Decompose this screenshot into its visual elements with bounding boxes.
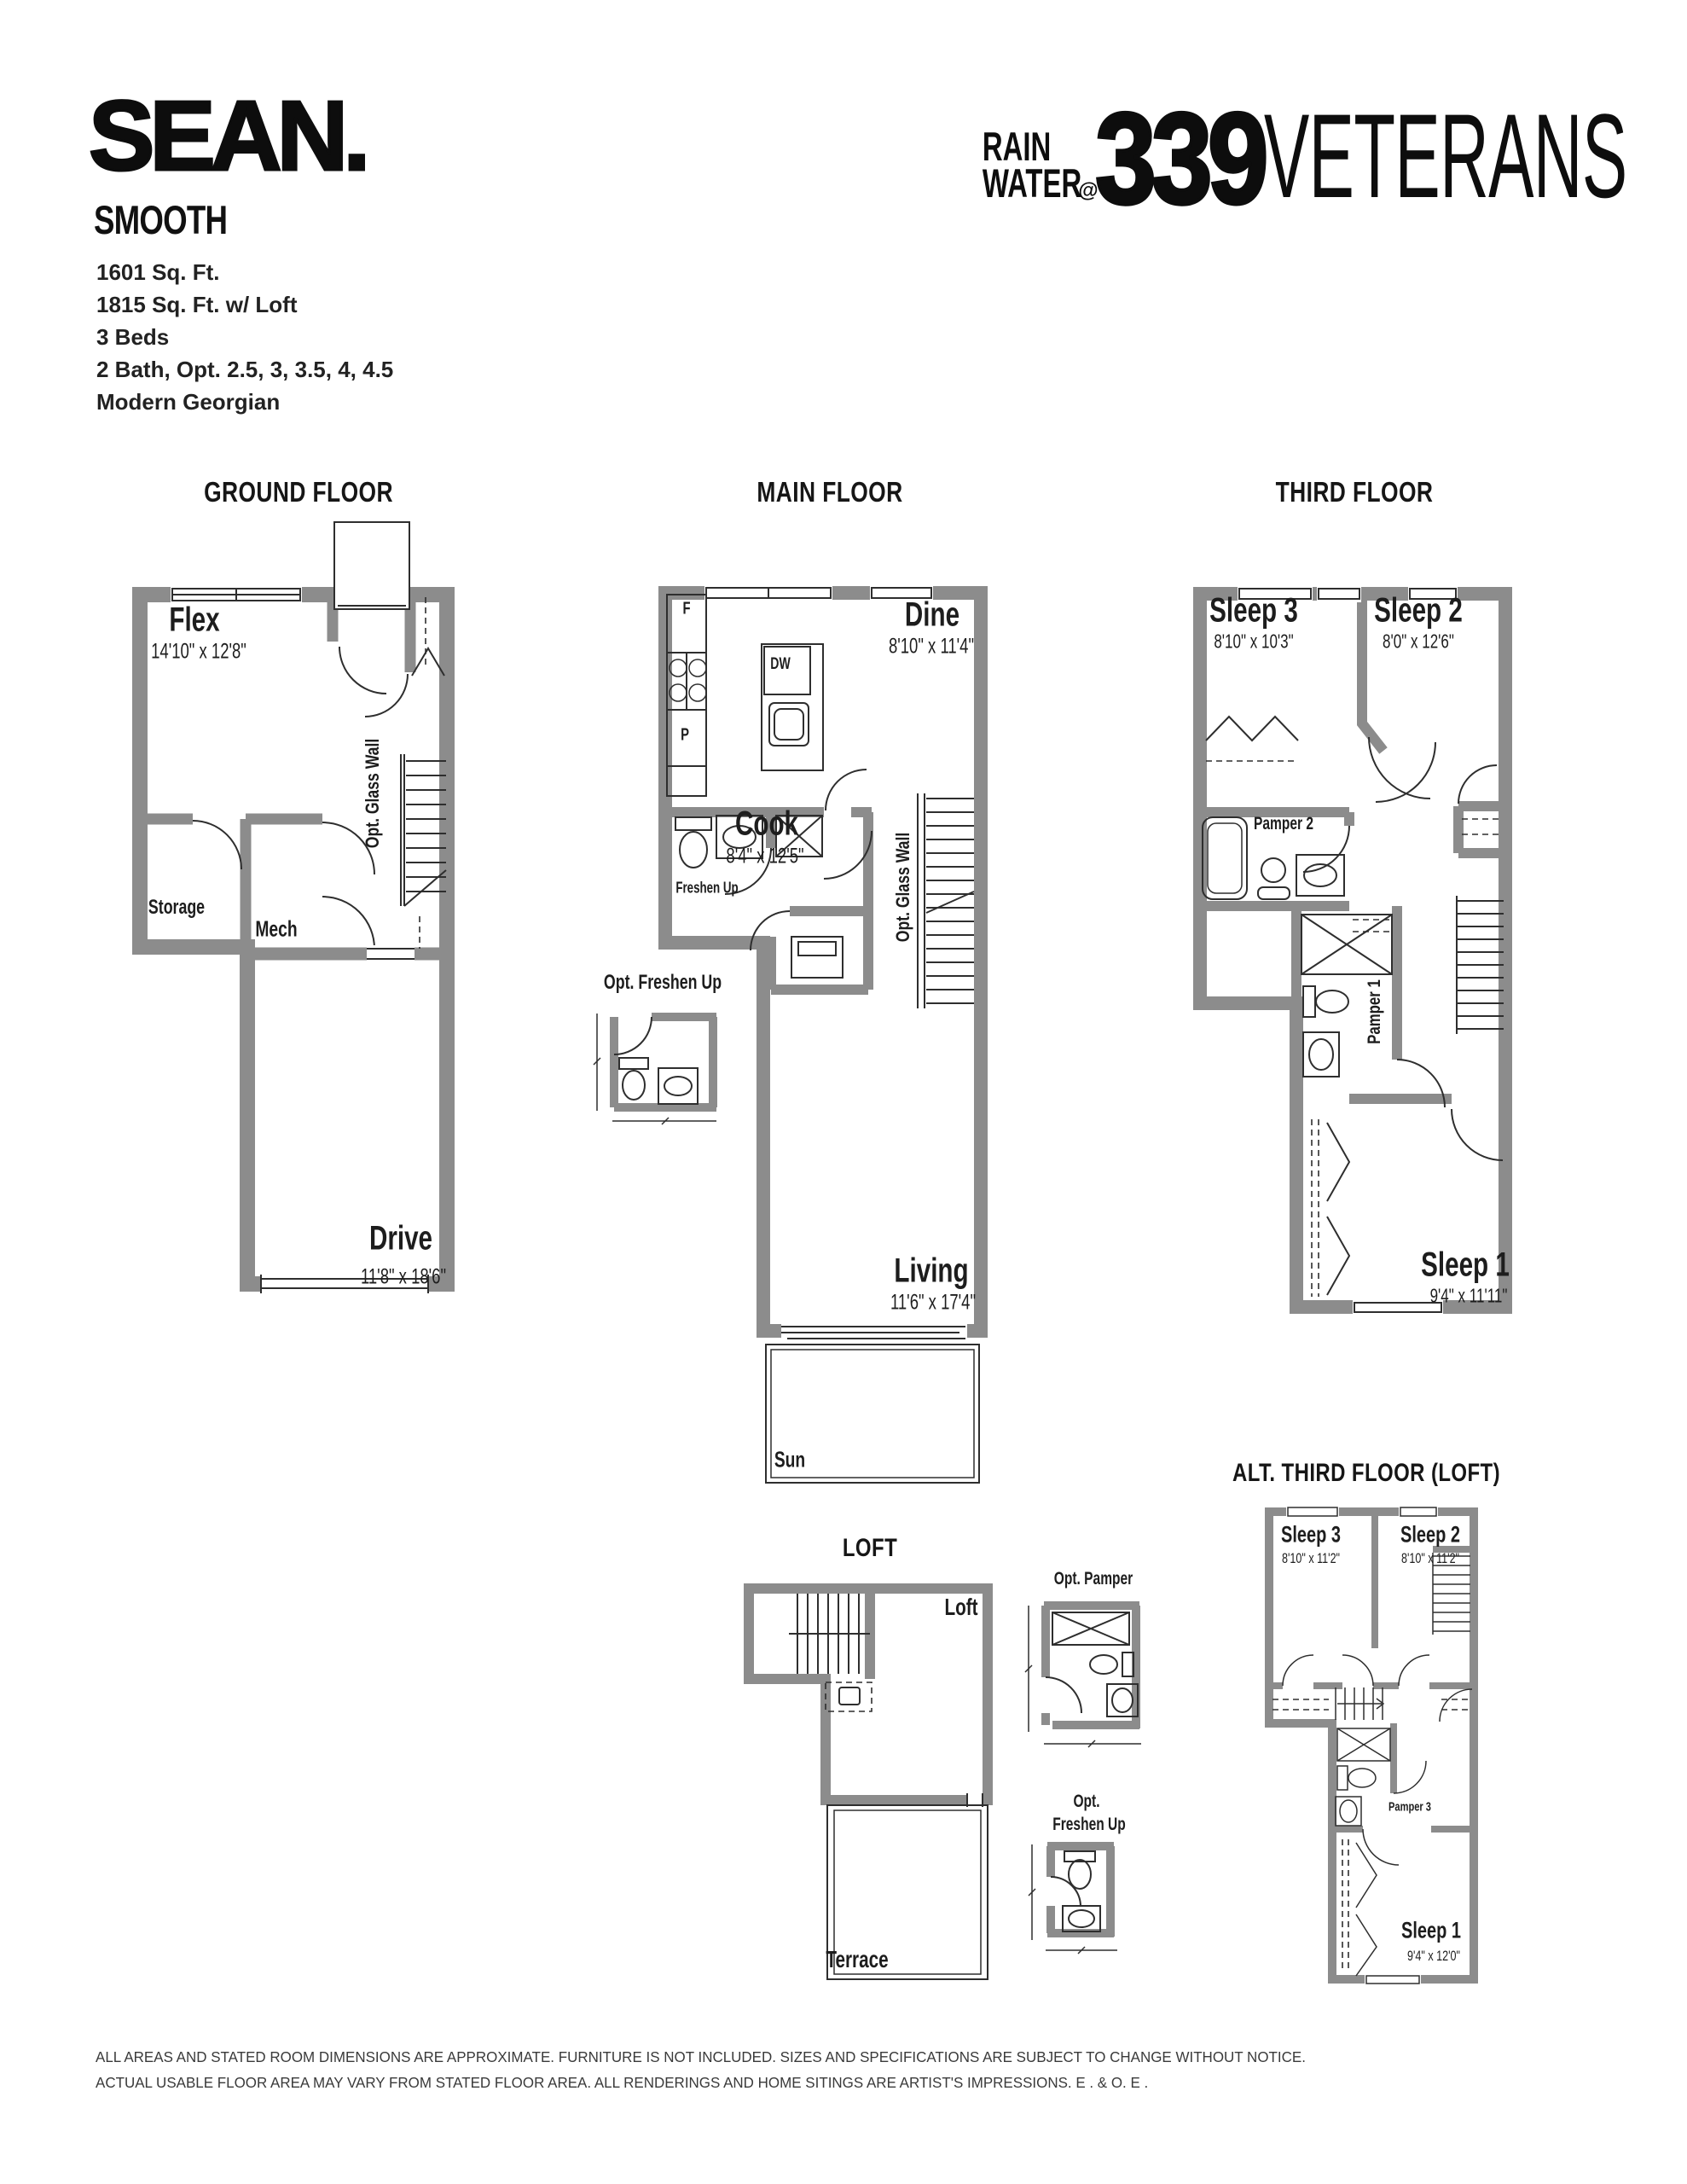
spec-beds: 3 Beds <box>96 321 393 353</box>
opt-freshen-up-line1: Opt. <box>1073 1792 1099 1812</box>
main-dishwasher-label: DW <box>770 655 790 674</box>
ground-drive-label: Drive <box>369 1220 432 1258</box>
third-pamper2-label: Pamper 2 <box>1254 814 1313 834</box>
logo-rainwater: RAIN WATER <box>983 128 1081 201</box>
main-dine-label: Dine <box>905 596 959 635</box>
logo-word-rain: RAIN <box>983 128 1051 165</box>
disclaimer-line2: ACTUAL USABLE FLOOR AREA MAY VARY FROM S… <box>96 2070 1306 2095</box>
third-pamper1-label: Pamper 1 <box>1365 979 1385 1044</box>
main-cook-dims: 8'4" x 12'5" <box>726 845 803 869</box>
third-floor-plan <box>1151 512 1527 1348</box>
plan-name: SMOOTH <box>94 196 227 243</box>
main-living-label: Living <box>894 1252 968 1291</box>
logo-number: 339 <box>1095 94 1264 224</box>
ground-floor-title: GROUND FLOOR <box>204 476 393 508</box>
ground-storage-label: Storage <box>148 896 205 920</box>
alt-sleep3-dims: 8'10" x 11'2" <box>1282 1550 1340 1567</box>
loft-terrace-label: Terrace <box>826 1946 888 1973</box>
disclaimer: ALL AREAS AND STATED ROOM DIMENSIONS ARE… <box>96 2044 1306 2095</box>
alt-sleep2-label: Sleep 2 <box>1400 1522 1460 1548</box>
main-freshen-up-label: Freshen Up <box>675 880 738 897</box>
main-floor-title: MAIN FLOOR <box>757 476 902 508</box>
spec-baths: 2 Bath, Opt. 2.5, 3, 3.5, 4, 4.5 <box>96 353 393 386</box>
alt-sleep1-dims: 9'4" x 12'0" <box>1407 1948 1460 1965</box>
opt-pamper-plan <box>1006 1570 1177 1757</box>
main-pantry-label: P <box>681 726 689 746</box>
third-sleep3-label: Sleep 3 <box>1209 592 1298 630</box>
brand-logo: SEAN. <box>89 78 366 193</box>
alt-pamper3-label: Pamper 3 <box>1388 1800 1431 1815</box>
alt-sleep2-dims: 8'10" x 11'2" <box>1401 1550 1459 1567</box>
alt-sleep3-label: Sleep 3 <box>1281 1522 1341 1548</box>
logo-word-water: WATER <box>983 165 1081 201</box>
alt-sleep1-label: Sleep 1 <box>1401 1918 1461 1944</box>
third-sleep1-dims: 9'4" x 11'11" <box>1430 1285 1508 1308</box>
third-floor-title: THIRD FLOOR <box>1276 476 1434 508</box>
spec-style: Modern Georgian <box>96 386 393 418</box>
main-fridge-label: F <box>682 600 690 619</box>
main-dine-dims: 8'10" x 11'4" <box>889 635 974 659</box>
main-living-dims: 11'6" x 17'4" <box>890 1291 976 1316</box>
main-cook-label: Cook <box>735 805 798 844</box>
opt-freshen-up-line2: Freshen Up <box>1052 1815 1125 1835</box>
third-sleep1-label: Sleep 1 <box>1421 1246 1510 1285</box>
main-opt-freshen-up-label: Opt. Freshen Up <box>604 971 722 995</box>
opt-freshen-up-plan <box>1006 1757 1177 1979</box>
spec-sqft: 1601 Sq. Ft. <box>96 256 393 288</box>
ground-mech-label: Mech <box>255 916 297 943</box>
logo-veterans: VETERANS <box>1264 96 1627 216</box>
third-sleep2-dims: 8'0" x 12'6" <box>1383 630 1454 653</box>
loft-room-label: Loft <box>944 1594 977 1621</box>
spec-list: 1601 Sq. Ft. 1815 Sq. Ft. w/ Loft 3 Beds… <box>96 256 393 418</box>
floorplan-page: SEAN. SMOOTH 1601 Sq. Ft. 1815 Sq. Ft. w… <box>0 0 1687 2184</box>
ground-opt-glass-wall-label: Opt. Glass Wall <box>362 739 384 848</box>
ground-flex-dims: 14'10" x 12'8" <box>151 640 246 665</box>
main-sun-label: Sun <box>774 1447 805 1473</box>
spec-sqft-loft: 1815 Sq. Ft. w/ Loft <box>96 288 393 321</box>
third-sleep3-dims: 8'10" x 10'3" <box>1214 630 1293 653</box>
ground-flex-label: Flex <box>169 601 219 640</box>
ground-drive-dims: 11'8" x 18'6" <box>361 1265 446 1290</box>
third-sleep2-label: Sleep 2 <box>1374 592 1463 630</box>
rainwater-339-veterans-logo: RAIN WATER @ 339 VETERANS <box>940 94 1687 224</box>
opt-pamper-label: Opt. Pamper <box>1054 1569 1133 1589</box>
disclaimer-line1: ALL AREAS AND STATED ROOM DIMENSIONS ARE… <box>96 2044 1306 2070</box>
main-opt-glass-wall-label: Opt. Glass Wall <box>892 833 914 942</box>
